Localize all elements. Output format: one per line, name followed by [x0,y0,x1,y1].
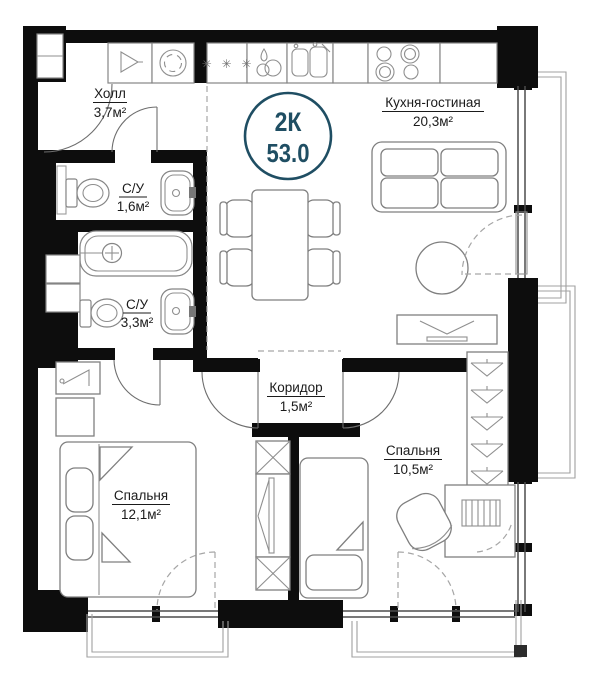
room-name: Спальня [386,443,440,458]
door-jamb [108,348,115,360]
room-label-bedroom-left: Спальня 12,1м² [109,485,173,522]
window-jamb [514,543,532,552]
corridor-left-door [202,372,258,428]
room-area: 3,7м² [94,105,127,120]
balcony-right-mid [538,286,575,478]
dining-set [220,190,340,300]
room-name: Спальня [114,488,168,503]
room-label-corridor: Коридор 1,5м² [267,380,325,414]
balcony-right-top [538,72,566,303]
wall-bath-divider [56,220,193,232]
room-name: Коридор [269,380,322,395]
room-name: Холл [94,86,126,101]
window-jamb [514,604,532,616]
dining-chair [305,249,340,286]
sofa [372,142,506,212]
wall-bottom-mid [218,600,343,628]
badge-type: 2К [275,107,302,137]
window-jamb [452,606,460,622]
door-jamb [342,359,349,372]
dining-chair [305,200,340,237]
bedroom-right-window [343,611,515,617]
closet [56,362,100,394]
room-area: 20,3м² [413,114,454,129]
dining-chair [220,249,255,286]
tv-stand-icon [397,315,497,344]
window-jamb [514,476,532,484]
lobby-closets [56,362,100,436]
room-label-bath-small: С/У 1,6м² [117,181,150,214]
room-area: 10,5м² [393,462,434,477]
wall-corridor-top-left [193,358,258,372]
room-area: 1,5м² [280,399,313,414]
sliding-wardrobe [256,474,290,557]
door-jamb [153,348,160,360]
area-badge: 2К 53.0 [245,93,331,179]
closet [56,398,94,436]
wall-right-low [508,305,538,482]
pillow [66,516,93,560]
kitchen-window [516,86,527,278]
shaft-box [46,284,80,312]
floor-plan-svg: ✳ ✳ ✳ [0,0,600,684]
single-bed [300,458,368,598]
room-label-bedroom-right: Спальня 10,5м² [384,443,442,477]
room-name: С/У [126,297,149,312]
wall-bath-bottom-left [38,348,108,360]
dining-chair [220,200,255,237]
desk [445,485,515,557]
room-label-bath-big: С/У 3,3м² [121,297,154,330]
freezer-stars-icon: ✳ ✳ ✳ [202,57,255,71]
wall-right-mid-block [508,278,538,308]
wall-corridor-bottom [252,423,360,437]
balcony-corner-block [514,645,527,657]
wall-bath-right [193,150,207,365]
window-jamb [152,606,160,622]
pillow [66,468,93,512]
door-jamb [253,359,260,372]
window-jamb [514,83,532,90]
toilet-icon [80,299,123,327]
balcony-bottom-right [352,600,521,657]
coffee-table [416,242,468,294]
corridor-right-door [343,372,399,428]
room-area: 3,3м² [121,315,154,330]
window-jamb [390,606,398,622]
duct-box [57,166,66,214]
room-name: Кухня-гостиная [385,95,481,110]
badge-area: 53.0 [267,139,310,168]
sink-icon [161,289,196,334]
sink-icon [161,171,196,215]
bedroom-left-furniture [60,441,290,597]
room-name: С/У [122,181,145,196]
pillow [306,555,362,590]
bathtub [80,231,192,276]
toilet-icon [66,179,109,207]
wall-left [23,30,38,614]
dining-table [252,190,308,300]
wardrobe-column [256,441,290,590]
room-label-hall: Холл 3,7м² [93,86,127,120]
bathroom-big-door [114,360,160,405]
floor-plan: ✳ ✳ ✳ [0,0,600,684]
kitchen-counter: ✳ ✳ ✳ [108,43,497,83]
wall-topright-block [497,26,538,88]
wall-corridor-top-right [343,358,468,372]
shaft-box [46,255,80,283]
bedroom-right-balcony-door [398,552,456,610]
kitchen-balcony-door [462,215,522,275]
room-label-kitchen-living: Кухня-гостиная 20,3м² [382,95,484,129]
room-area: 12,1м² [121,507,162,522]
room-area: 1,6м² [117,199,150,214]
wall-top [60,30,500,43]
